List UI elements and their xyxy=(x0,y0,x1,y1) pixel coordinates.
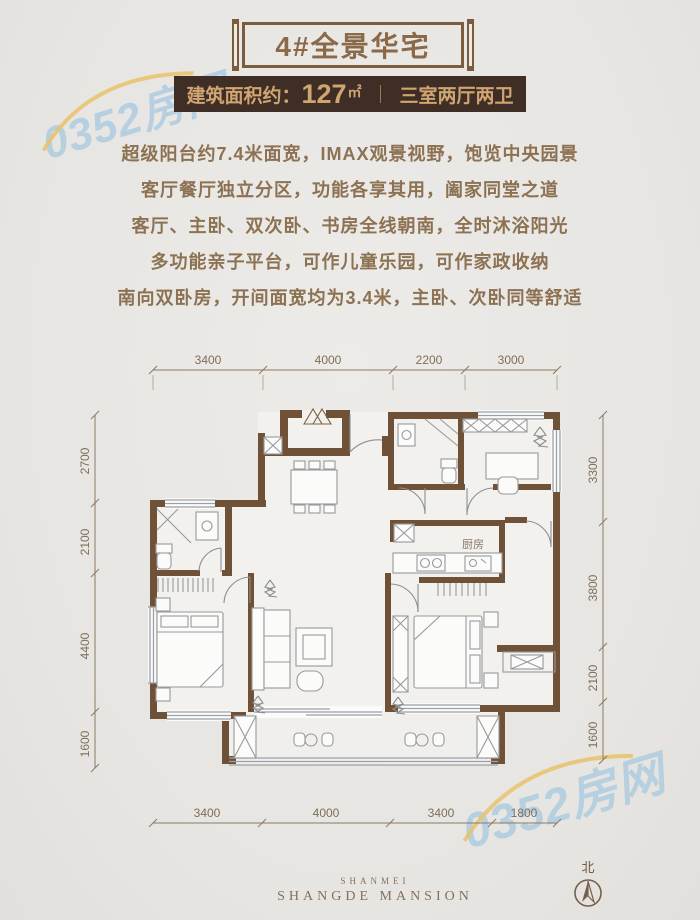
north-arrow-icon: 北 xyxy=(575,860,601,906)
layout-text: 三室两厅两卫 xyxy=(400,81,514,108)
scroll-rod-right-icon xyxy=(467,22,474,68)
window-bathroom1-north xyxy=(165,498,215,509)
area-unit: ㎡ xyxy=(348,82,362,102)
area-value: 127 xyxy=(301,79,346,110)
area-label: 建筑面积约： xyxy=(186,81,300,108)
dim-top: 3400 xyxy=(195,353,222,367)
room-label-kitchen: 厨房 xyxy=(462,538,484,551)
brand-logo-sub: SHANMEI xyxy=(255,876,495,886)
banner-divider: ｜ xyxy=(372,81,390,107)
dim-right: 1600 xyxy=(586,721,600,748)
dim-left: 2100 xyxy=(78,528,92,555)
area-banner: 建筑面积约： 127 ㎡ ｜ 三室两厅两卫 xyxy=(174,76,526,112)
dim-bottom: 1800 xyxy=(511,806,538,820)
window-bedroom2-south xyxy=(167,710,231,721)
dim-right: 3300 xyxy=(586,456,600,483)
brand-logo-main: SHANGDE MANSION xyxy=(255,889,495,905)
floor-plan: 厨房 3400 4000 2200 3000 3400 4000 3400 18… xyxy=(0,0,700,920)
shaft-icon xyxy=(264,437,282,454)
scroll-rod-left-icon xyxy=(232,22,239,68)
window-living-south xyxy=(254,706,382,718)
dim-left: 2700 xyxy=(78,447,92,474)
dim-bottom: 3400 xyxy=(428,806,455,820)
dim-top: 2200 xyxy=(416,353,443,367)
brand-logo: SHANMEI SHANGDE MANSION xyxy=(255,876,495,905)
dim-top: 4000 xyxy=(315,353,342,367)
dim-right: 3800 xyxy=(586,574,600,601)
north-label: 北 xyxy=(581,860,594,875)
title-banner: 4#全景华宅 xyxy=(242,22,464,68)
dim-bottom: 4000 xyxy=(313,806,340,820)
dim-bottom: 3400 xyxy=(194,806,221,820)
dim-top: 3000 xyxy=(498,353,525,367)
dim-right: 2100 xyxy=(586,664,600,691)
dining-table xyxy=(291,461,337,513)
door-gap xyxy=(391,577,419,583)
window-study-east xyxy=(551,430,562,492)
dim-left: 4400 xyxy=(78,632,92,659)
dim-left: 1600 xyxy=(78,730,92,757)
page-title: 4#全景华宅 xyxy=(275,25,430,65)
window-master-south xyxy=(398,703,480,714)
